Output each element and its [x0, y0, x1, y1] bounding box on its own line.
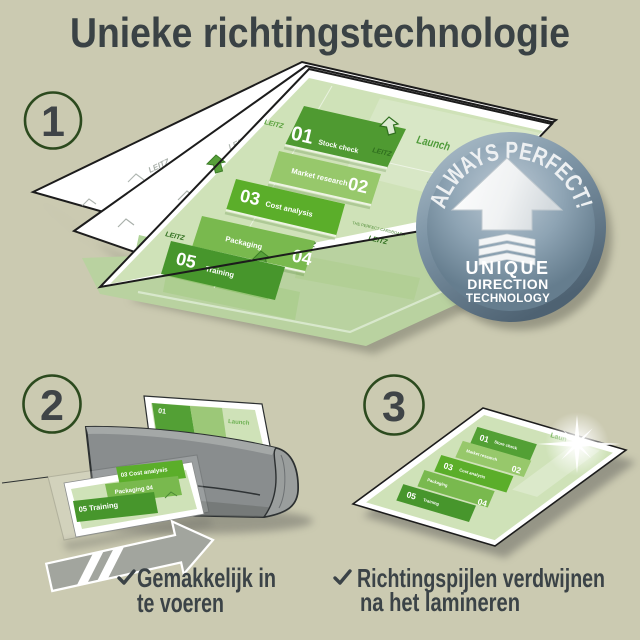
svg-text:3: 3 — [382, 383, 406, 431]
svg-text:2: 2 — [40, 382, 64, 430]
svg-text:1: 1 — [41, 98, 65, 146]
svg-text:te voeren: te voeren — [137, 588, 224, 618]
svg-text:01: 01 — [158, 408, 166, 416]
svg-text:Unieke richtingstechnologie: Unieke richtingstechnologie — [70, 9, 570, 56]
svg-text:na het lamineren: na het lamineren — [360, 587, 520, 617]
svg-text:DIRECTION: DIRECTION — [467, 276, 549, 292]
svg-text:UNIQUE: UNIQUE — [465, 258, 550, 278]
svg-text:TECHNOLOGY: TECHNOLOGY — [466, 293, 550, 305]
